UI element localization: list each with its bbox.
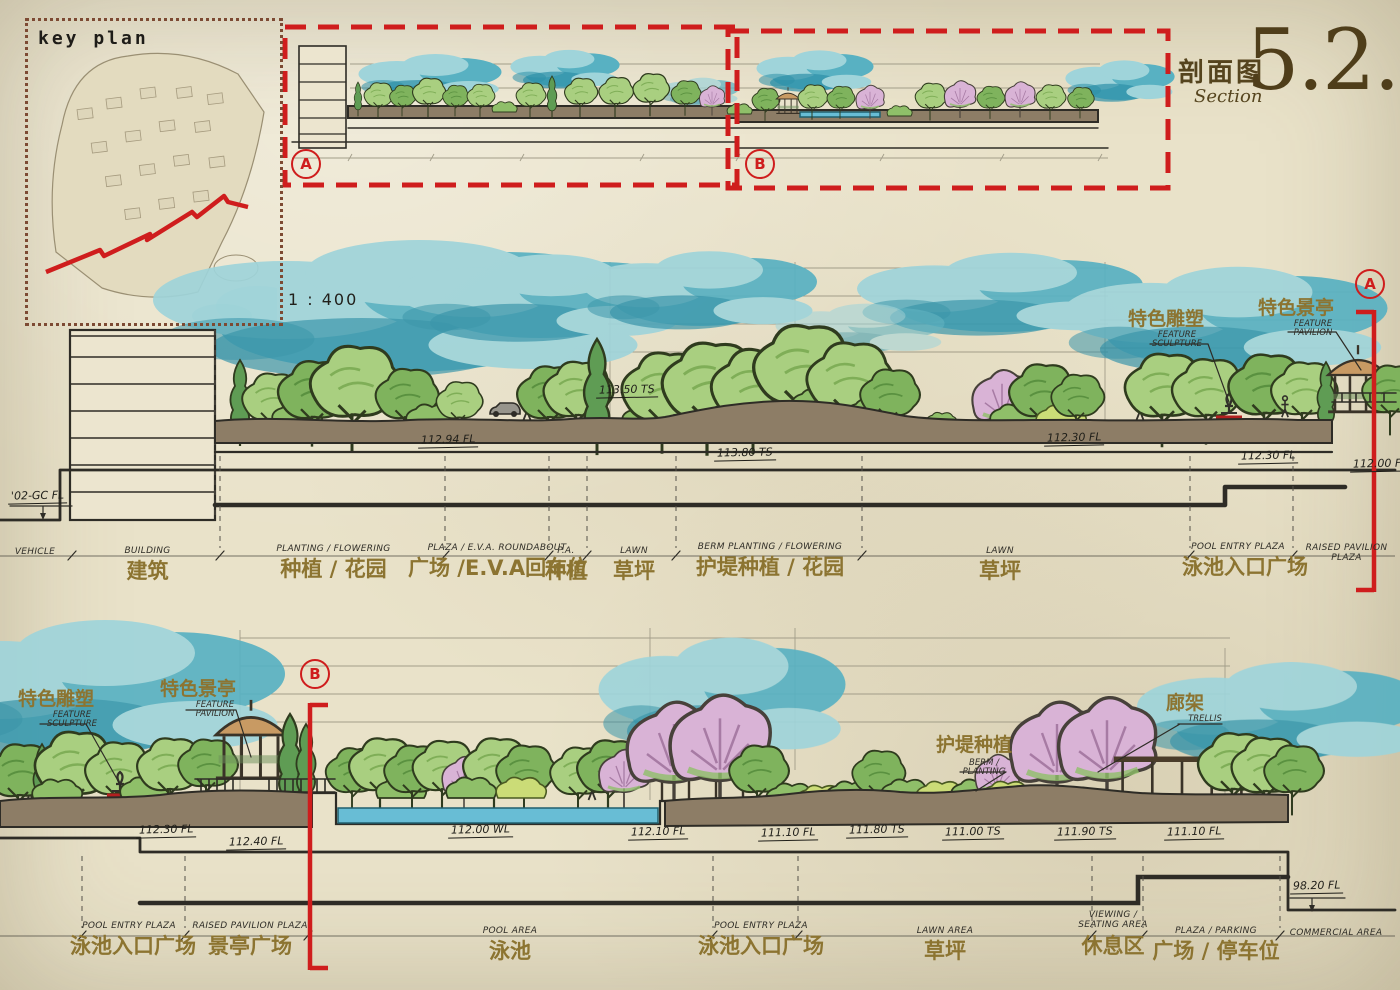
callout-b-sculpture-zh: 特色雕塑: [18, 690, 94, 709]
elevation-a-1: 113.50 TS: [596, 383, 658, 398]
marker-b-overview: B: [745, 149, 775, 179]
elevation-b-3: 112.10 FL: [628, 825, 689, 840]
zone-a-raised-pavilion: RAISED PAVILION PLAZA: [1298, 543, 1395, 567]
elevation-a-0: 112.94 FL: [418, 433, 479, 448]
page-title-number: 5.2.2: [1246, 18, 1400, 102]
zone-a-lawn-1: LAWN草坪: [590, 546, 678, 585]
elevation-b-9: 98.20 FL: [1290, 879, 1344, 894]
zone-b-pool-entry-2: POOL ENTRY PLAZA泳池入口广场: [698, 921, 824, 960]
zone-a-vehicle: VEHICLE: [0, 547, 70, 560]
elevation-a-4: 112.30 FL: [1238, 449, 1299, 464]
zone-b-lawn-area: LAWN AREA草坪: [855, 926, 1035, 965]
zone-a-building: BUILDING建筑: [75, 546, 220, 585]
key-plan-frame: [25, 18, 283, 326]
callout-a-pavilion-zh: 特色景亭: [1258, 299, 1334, 318]
elevation-b-7: 111.90 TS: [1054, 825, 1116, 840]
sheet: key plan 剖面图 Section 5.2.2 1 : 400 A B A…: [0, 0, 1400, 990]
elevation-a-3: 112.30 FL: [1044, 431, 1105, 446]
scale-label: 1 : 400: [288, 292, 358, 308]
callout-a-sculpture-en: FEATURE SCULPTURE: [1140, 331, 1214, 350]
elevation-a-datum: '02-GC FL: [8, 489, 67, 504]
zone-b-commercial: COMMERCIAL AREA: [1280, 928, 1392, 941]
marker-a-section: A: [1355, 269, 1385, 299]
elevation-b-4: 111.10 FL: [758, 826, 819, 841]
callout-b-pavilion-zh: 特色景亭: [160, 680, 236, 699]
elevation-b-0: 112.30 FL: [136, 823, 197, 838]
callout-b-berm-en: BERM / PLANTING: [952, 759, 1016, 778]
elevation-b-8: 111.10 FL: [1164, 825, 1225, 840]
key-plan-label: key plan: [38, 30, 149, 48]
elevation-b-1: 112.40 FL: [226, 835, 287, 850]
elevation-b-5: 111.80 TS: [846, 823, 908, 838]
zone-a-pa: P.A.种植: [540, 546, 592, 585]
zone-a-berm-planting: BERM PLANTING / FLOWERING护堤种植 / 花园: [678, 542, 862, 581]
zone-b-plaza-parking: PLAZA / PARKING广场 / 停车位: [1140, 926, 1292, 965]
overview-strip: [285, 27, 1175, 188]
pool-water: [338, 808, 658, 823]
zone-b-raised-pavilion-plaza: RAISED PAVILION PLAZA景亭广场: [190, 921, 310, 960]
marker-b-section: B: [300, 659, 330, 689]
elevation-a-2: 113.80 TS: [714, 446, 776, 461]
callout-b-trellis-zh: 廊架: [1166, 694, 1204, 713]
callout-a-sculpture-zh: 特色雕塑: [1128, 310, 1204, 329]
callout-b-pavilion-en: FEATURE PAVILION: [182, 701, 248, 720]
section-b-drawing: [0, 620, 1400, 970]
callout-b-sculpture-en: FEATURE SCULPTURE: [36, 711, 108, 730]
marker-a-overview: A: [291, 149, 321, 179]
elevation-b-2: 112.00 WL: [448, 823, 513, 838]
elevation-b-6: 111.00 TS: [942, 825, 1004, 840]
zone-b-pool-entry-1: POOL ENTRY PLAZA泳池入口广场: [70, 921, 188, 960]
callout-b-trellis-en: TRELLIS: [1180, 715, 1230, 724]
zone-b-pool-area: POOL AREA泳池: [390, 926, 630, 965]
callout-b-berm-zh: 护堤种植: [936, 736, 1012, 755]
zone-a-lawn-2: LAWN草坪: [880, 546, 1120, 585]
elevation-a-5: 112.00 FL: [1350, 457, 1400, 472]
zone-a-pool-entry: POOL ENTRY PLAZA泳池入口广场: [1182, 542, 1294, 581]
callout-a-pavilion-en: FEATURE PAVILION: [1278, 320, 1348, 339]
